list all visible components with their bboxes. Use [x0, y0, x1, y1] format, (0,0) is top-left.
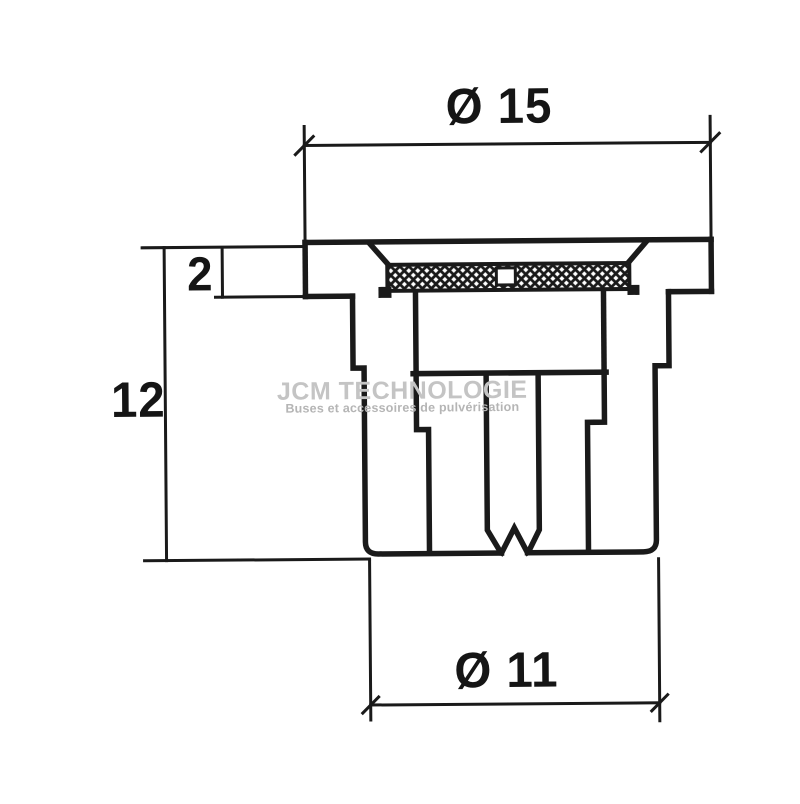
dimension-label-bottom-diameter: Ø 11	[454, 645, 559, 696]
chamber-wall-left	[415, 291, 416, 374]
watermark-subtitle: Buses et accessoires de pulvérisation	[285, 401, 519, 415]
dimension-label-flange-thickness: 2	[187, 251, 214, 299]
dim2-bottom-extension	[215, 297, 307, 298]
dim15-ext-right	[710, 116, 711, 239]
drawing-sheet: JCM TECHNOLOGIE Buses et accessoires de …	[0, 0, 800, 804]
filter-center-orifice	[496, 268, 515, 285]
technical-drawing-page: JCM TECHNOLOGIE Buses et accessoires de …	[0, 0, 800, 800]
dimension-label-overall-height: 12	[111, 375, 166, 425]
dim12-bottom-extension	[145, 559, 370, 561]
orifice-v-notch	[501, 528, 527, 553]
filter-corner-right	[627, 285, 639, 295]
inner-leg-right	[587, 372, 605, 550]
flange-top-edge	[305, 239, 711, 242]
dim11-ext-right	[659, 559, 660, 721]
dim15-line	[304, 142, 710, 145]
chamber-floor	[413, 372, 606, 374]
chamber-wall-right	[603, 288, 604, 372]
filter-corner-left	[378, 287, 391, 298]
dimension-label-top-diameter: Ø 15	[445, 81, 552, 132]
dim11-line	[371, 703, 660, 705]
dimension-lines	[141, 116, 724, 725]
bore-wall-right	[527, 374, 539, 552]
dim11-ext-left	[370, 561, 371, 720]
